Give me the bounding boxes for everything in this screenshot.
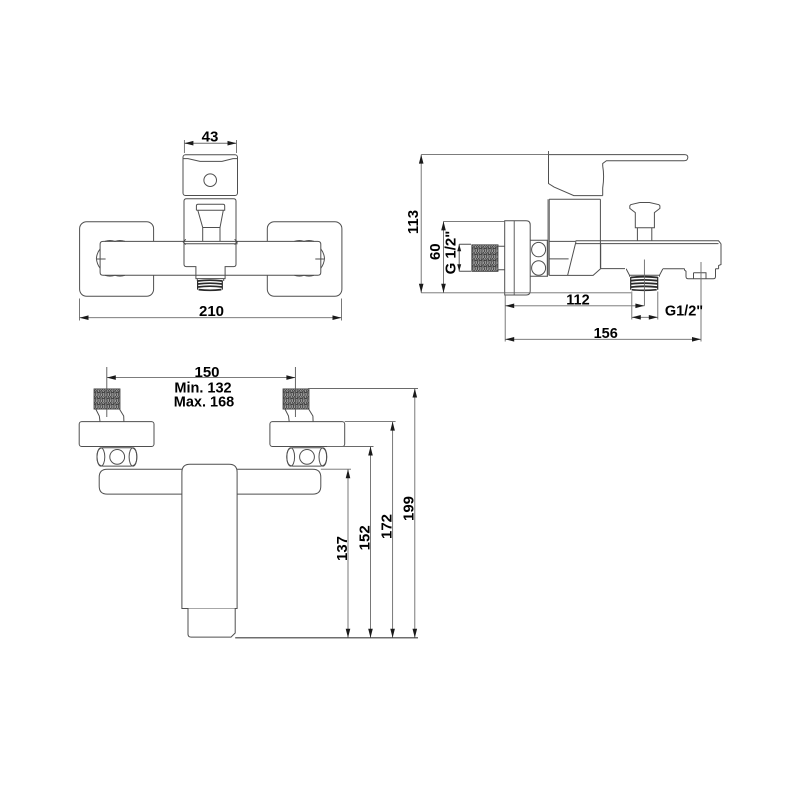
- svg-text:152: 152: [356, 525, 373, 550]
- svg-text:172: 172: [378, 514, 395, 539]
- svg-text:156: 156: [594, 326, 618, 342]
- svg-text:G 1/2": G 1/2": [443, 231, 460, 275]
- svg-text:113: 113: [405, 210, 422, 234]
- svg-text:112: 112: [566, 292, 589, 308]
- svg-text:150: 150: [194, 364, 219, 381]
- svg-text:Max. 168: Max. 168: [174, 395, 234, 411]
- svg-text:60: 60: [427, 243, 444, 260]
- svg-text:210: 210: [199, 303, 224, 320]
- svg-text:G1/2": G1/2": [665, 303, 703, 319]
- svg-text:137: 137: [334, 536, 351, 561]
- svg-text:199: 199: [401, 496, 418, 521]
